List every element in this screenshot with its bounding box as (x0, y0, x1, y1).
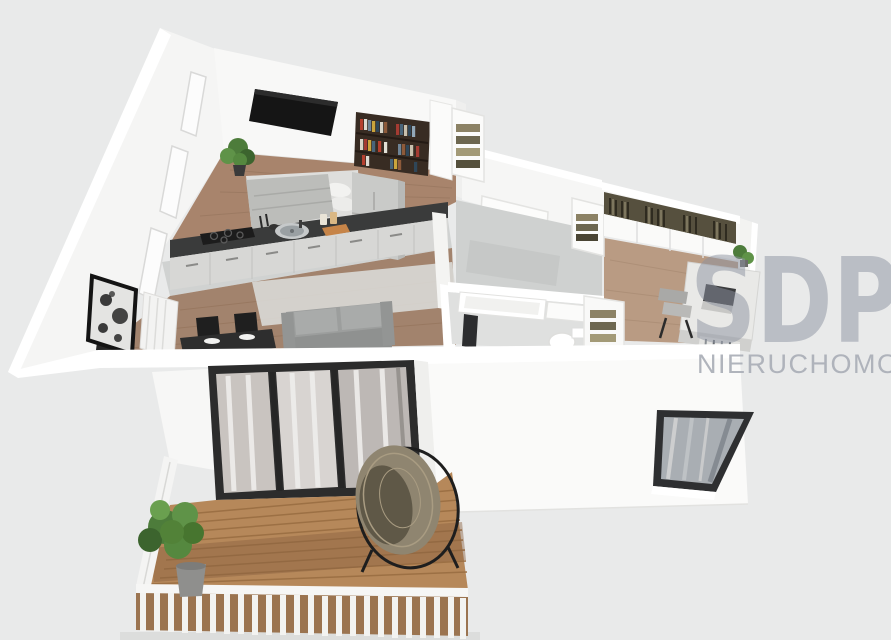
floorplan-render-page: SDP NIERUCHOMOŚCI (0, 0, 891, 640)
bedroom-plant-pot (233, 165, 246, 176)
faucet (299, 220, 302, 228)
dining-chair (234, 312, 258, 334)
plate (239, 334, 255, 340)
hall-open-wardrobe (572, 198, 604, 256)
plate (204, 338, 220, 344)
towel (462, 314, 478, 348)
bath-cabinet (546, 302, 588, 322)
radiator (140, 292, 178, 358)
bookshelf (354, 112, 430, 176)
apartment-3d-render (0, 0, 891, 640)
wall-art (88, 276, 136, 354)
open-shelf-wardrobe (452, 108, 484, 182)
bedroom-wardrobe-block (430, 100, 452, 180)
